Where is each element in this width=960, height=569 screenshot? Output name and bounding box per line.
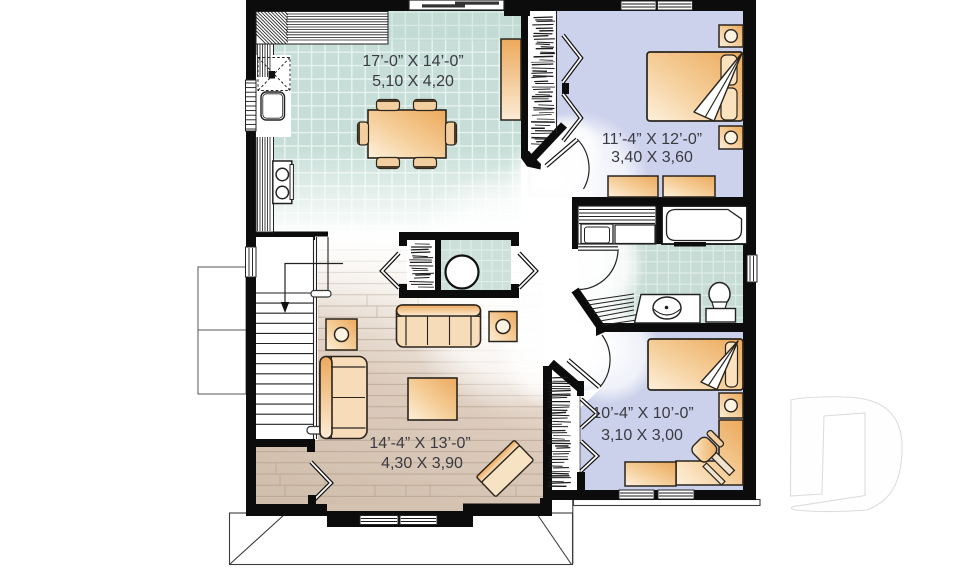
svg-text:17’-0” X 14’-0”: 17’-0” X 14’-0”	[362, 53, 463, 70]
svg-text:5,10 X 4,20: 5,10 X 4,20	[372, 73, 454, 90]
svg-text:4,30 X 3,90: 4,30 X 3,90	[381, 455, 463, 472]
svg-text:14’-4” X 13’-0”: 14’-4” X 13’-0”	[369, 435, 470, 452]
svg-text:10’-4” X 10’-0”: 10’-4” X 10’-0”	[592, 405, 693, 422]
svg-text:3,40 X 3,60: 3,40 X 3,60	[611, 149, 693, 166]
svg-text:11’-4” X 12’-0”: 11’-4” X 12’-0”	[602, 131, 702, 148]
svg-text:3,10 X 3,00: 3,10 X 3,00	[601, 427, 683, 444]
